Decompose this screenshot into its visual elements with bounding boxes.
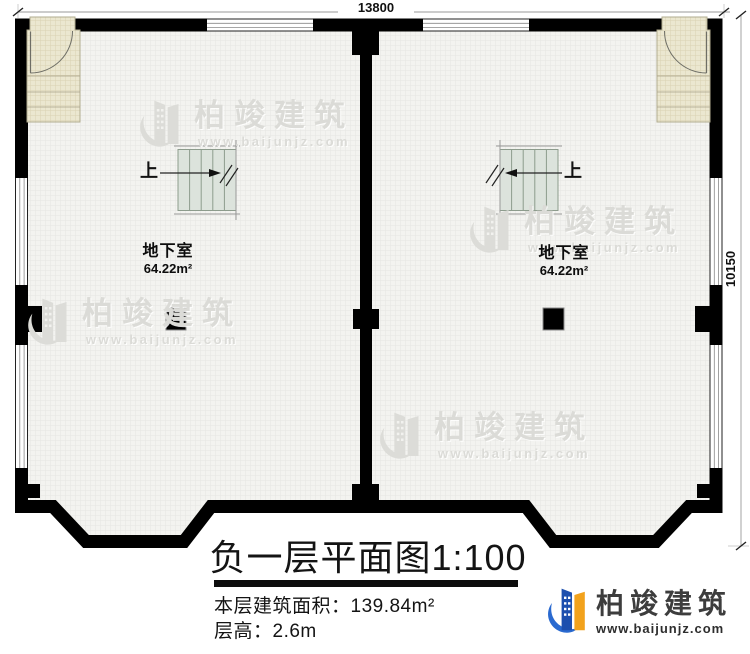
- watermark-url: www.baijunjz.com: [198, 134, 350, 149]
- floorplan-canvas: 柏竣建筑www.baijunjz.com 柏竣建筑www.baijunjz.co…: [0, 0, 750, 654]
- stair-up-label-left: 上: [140, 162, 158, 180]
- plan-title: 负一层平面图1:100: [163, 538, 573, 578]
- window: [423, 19, 529, 32]
- entry-vestibule-left: [27, 17, 80, 122]
- watermark-brand: 柏竣建筑: [194, 100, 354, 131]
- footer-logo: 柏竣建筑 www.baijunjz.com: [544, 582, 744, 646]
- entry-vestibule-right: [657, 17, 710, 122]
- window: [15, 345, 28, 468]
- watermark-url: www.baijunjz.com: [438, 446, 590, 461]
- baijun-logo-icon: [544, 582, 592, 640]
- watermark-brand: 柏竣建筑: [82, 298, 242, 329]
- exterior-walls: [22, 25, 717, 542]
- watermark-logo-icon: [136, 96, 186, 152]
- floor-area-text: 本层建筑面积：139.84m²: [214, 596, 435, 618]
- watermark-url: www.baijunjz.com: [86, 332, 238, 347]
- watermark: 柏竣建筑www.baijunjz.com: [24, 294, 242, 350]
- floor-height-text: 层高：2.6m: [214, 621, 317, 643]
- watermark-brand: 柏竣建筑: [434, 412, 594, 443]
- room-label-basement-left: 地下室 64.22m²: [108, 243, 228, 276]
- watermark-logo-icon: [376, 408, 426, 464]
- room-name: 地下室: [538, 245, 589, 263]
- footer-brand: 柏竣建筑: [596, 589, 732, 619]
- room-name: 地下室: [142, 243, 193, 261]
- room-label-basement-right: 地下室 64.22m²: [504, 245, 624, 278]
- dimension-right: 10150: [724, 241, 738, 297]
- window: [710, 178, 723, 285]
- window: [207, 19, 313, 32]
- watermark: 柏竣建筑www.baijunjz.com: [136, 96, 354, 152]
- window: [15, 178, 28, 285]
- watermark-brand: 柏竣建筑: [524, 206, 684, 237]
- footer-url: www.baijunjz.com: [596, 622, 724, 636]
- room-area: 64.22m²: [540, 264, 588, 278]
- watermark-logo-icon: [24, 294, 74, 350]
- window: [710, 345, 723, 468]
- room-area: 64.22m²: [144, 262, 192, 276]
- stair-up-label-right: 上: [564, 162, 582, 180]
- title-underline: [214, 580, 518, 587]
- watermark: 柏竣建筑www.baijunjz.com: [376, 408, 594, 464]
- dimension-top: 13800: [338, 1, 414, 15]
